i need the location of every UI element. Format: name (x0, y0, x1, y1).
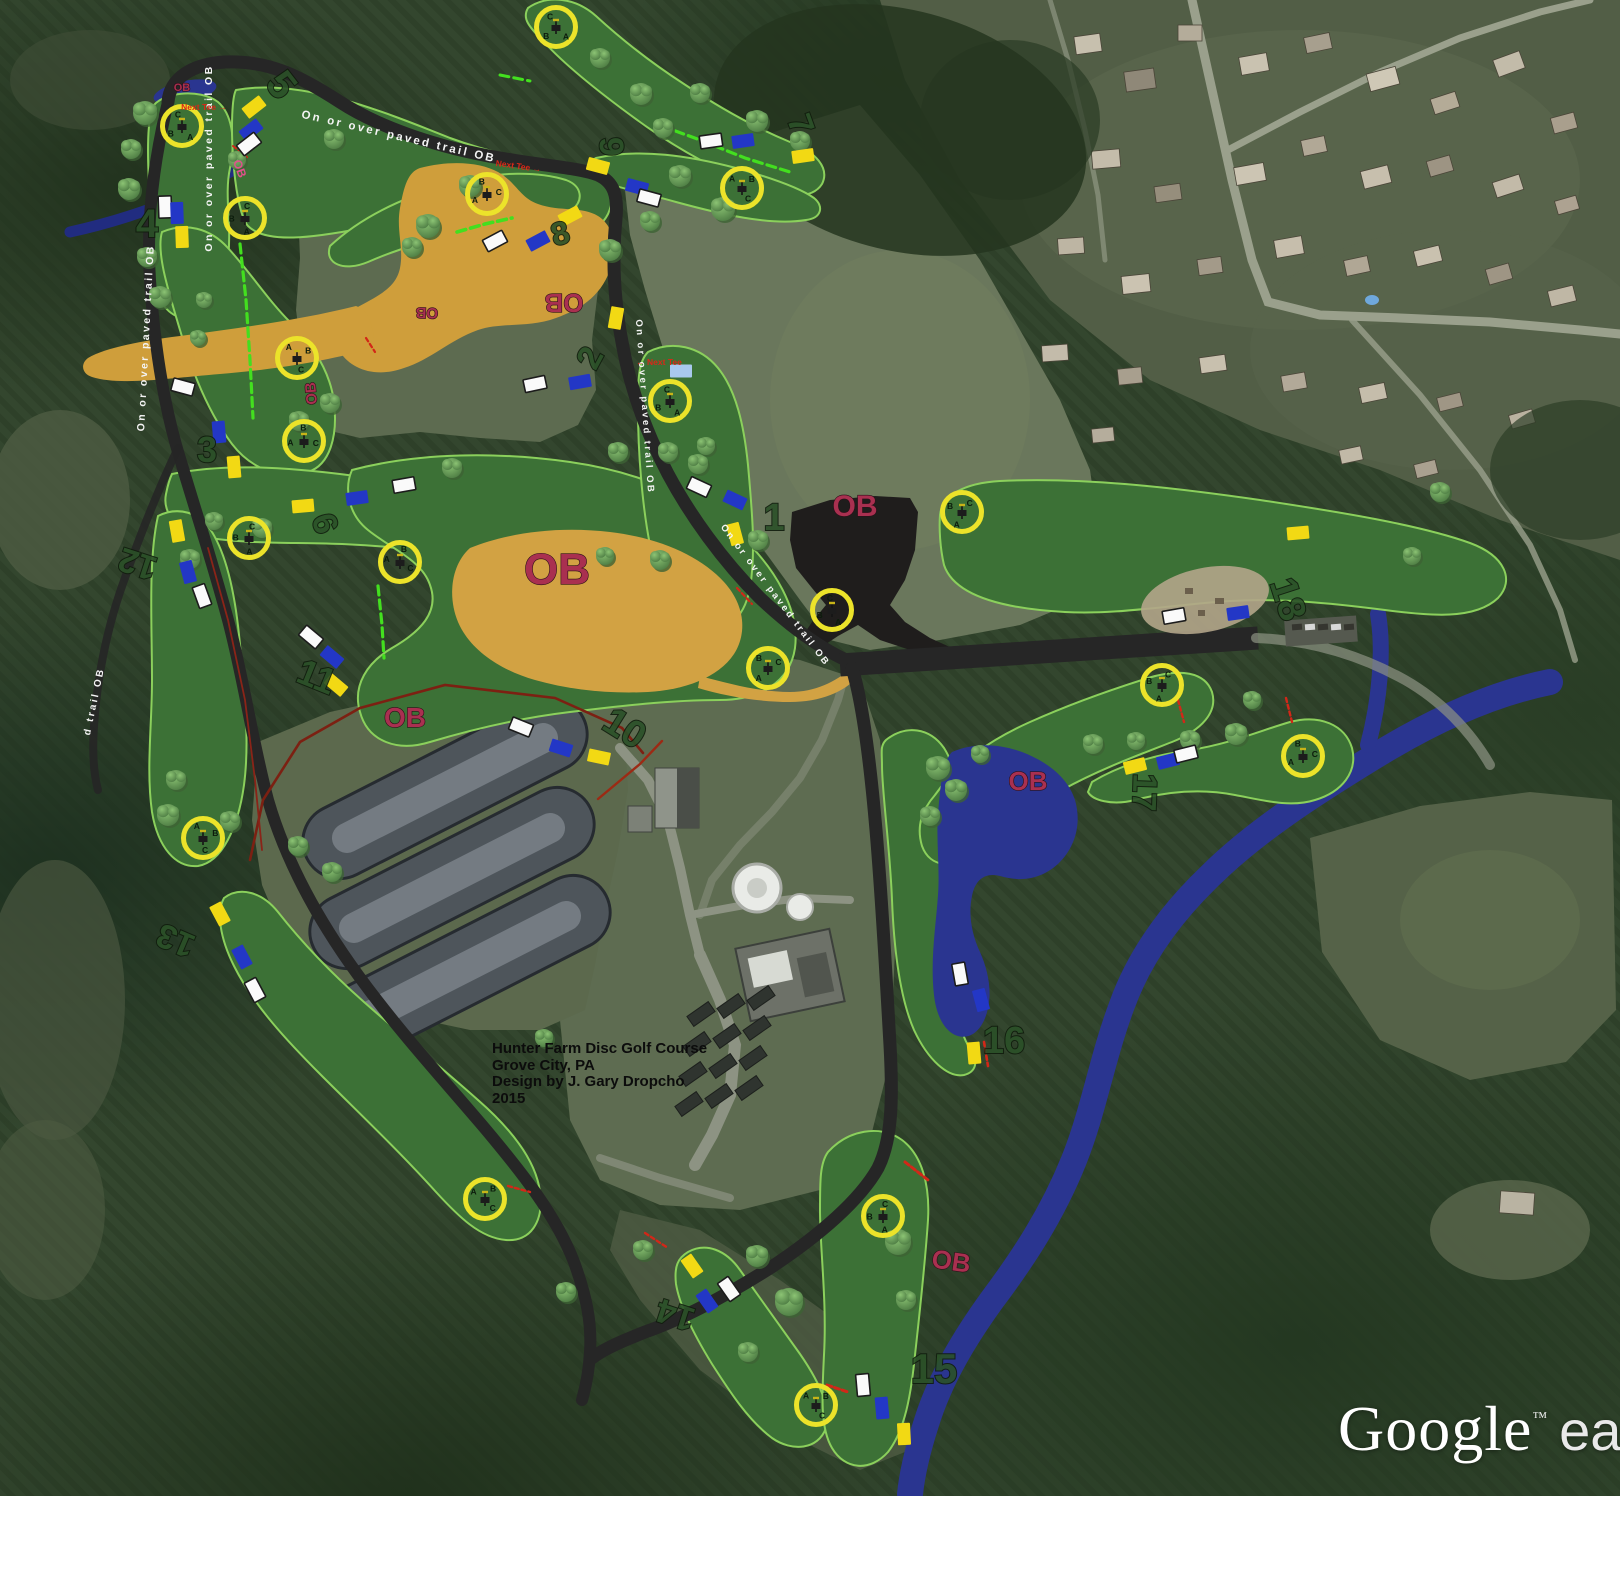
tree-canopy (166, 771, 177, 782)
basket-letter: C (882, 1199, 888, 1209)
tree-canopy (738, 1343, 749, 1354)
tee-pad-b (875, 1396, 890, 1419)
tree-canopy (1440, 484, 1450, 494)
basket-letter: C (819, 1410, 825, 1420)
tree-canopy (160, 288, 171, 299)
tree-canopy (1190, 732, 1200, 742)
basket-letter: C (664, 384, 670, 394)
basket-letter: C (496, 187, 502, 197)
house (1074, 33, 1102, 54)
tree-canopy (920, 807, 931, 818)
tree-canopy (412, 239, 422, 249)
clarifier-tank (787, 894, 813, 920)
basket-letter: C (249, 521, 255, 531)
tree-canopy (1243, 692, 1253, 702)
course-location: Grove City, PA (492, 1058, 707, 1075)
basket-letter: B (867, 1212, 873, 1222)
tree-canopy (198, 332, 206, 340)
tree-canopy (746, 111, 758, 123)
ob-label: OB (930, 1244, 973, 1279)
tree-canopy (334, 131, 344, 141)
tee-pad-w (952, 962, 969, 986)
basket-letter: A (187, 132, 193, 142)
basket-tray (1299, 754, 1308, 760)
tree-canopy (748, 531, 759, 542)
tree-canopy (1127, 733, 1137, 743)
basket-tray (481, 1197, 490, 1203)
tee-pad-y (175, 226, 189, 248)
tree-canopy (789, 1291, 803, 1305)
tree-canopy (1236, 725, 1247, 736)
tree-canopy (926, 757, 939, 770)
basket-letter: C (202, 845, 208, 855)
tree-canopy (650, 213, 660, 223)
basket-letter: A (471, 1187, 477, 1197)
tree-canopy (131, 141, 141, 151)
basket-letter: B (1295, 739, 1301, 749)
basket-tray (1158, 683, 1167, 689)
tee-pad-y (1286, 526, 1309, 541)
tree-canopy (1136, 734, 1145, 743)
house (1117, 367, 1143, 385)
tree-canopy (145, 103, 157, 115)
tree-canopy (610, 241, 621, 252)
parked-car (1344, 624, 1354, 631)
tree-icon (608, 442, 630, 464)
basket-letter: B (229, 214, 235, 224)
parked-car (1331, 624, 1341, 631)
house (1178, 25, 1202, 41)
basket-letter: A (756, 673, 762, 683)
creek-ob-line (378, 586, 384, 658)
tree-canopy (668, 444, 678, 454)
basket-letter: A (194, 821, 200, 831)
basket-tray (738, 186, 747, 192)
tee-pad-w (171, 378, 196, 396)
tree-canopy (133, 102, 146, 115)
course-name: Hunter Farm Disc Golf Course (492, 1041, 707, 1058)
tree-canopy (956, 781, 967, 792)
tree-canopy (971, 746, 981, 756)
next-tee-label: ← Next Tee (636, 357, 682, 367)
basket-letter: A (384, 554, 390, 564)
tree-canopy (176, 772, 186, 782)
tree-canopy (711, 198, 724, 211)
tree-canopy (556, 1283, 567, 1294)
basket-letter: B (655, 402, 661, 412)
house (1197, 256, 1223, 275)
basket-tray (552, 25, 561, 31)
basket-tray (300, 439, 309, 445)
tree-canopy (800, 133, 810, 143)
tee-pad-w (298, 625, 323, 649)
ob-label: OB (384, 702, 426, 733)
basket-letter: A (1288, 757, 1294, 767)
course-map-svg: CBACBACBACBACBACBACBACBACBACBACBACBACBAC… (0, 0, 1620, 1580)
tree-canopy (168, 806, 179, 817)
tree-canopy (663, 120, 673, 130)
tree-canopy (157, 805, 169, 817)
house (1091, 149, 1120, 169)
basket-letter: A (244, 226, 250, 236)
basket-letter: B (168, 128, 174, 138)
house (1091, 427, 1114, 443)
tree-canopy (330, 395, 340, 405)
basket-letter: B (212, 828, 218, 838)
tree-canopy (214, 514, 223, 523)
tree-canopy (643, 1242, 653, 1252)
tree-canopy (1412, 549, 1421, 558)
tee-pad-w (699, 133, 723, 149)
tree-canopy (698, 456, 708, 466)
basket-letter: C (827, 593, 833, 603)
basket-letter: B (1146, 676, 1152, 686)
ob-label: OB (833, 490, 878, 523)
house (1124, 68, 1156, 92)
tree-canopy (180, 550, 191, 561)
basket-tray (666, 399, 675, 405)
creek-ob-line (500, 75, 530, 81)
tee-pad-y (967, 1041, 982, 1064)
basket-letter: A (882, 1224, 888, 1234)
ob-label: OB (415, 304, 438, 322)
tree-canopy (896, 1291, 907, 1302)
basket-letter: B (756, 653, 762, 663)
basket-letter: B (823, 1391, 829, 1401)
basket-letter: C (547, 12, 553, 22)
tee-pad-y (897, 1423, 911, 1446)
tree-canopy (1430, 483, 1441, 494)
basket-tray (199, 836, 208, 842)
basket-letter: B (490, 1183, 496, 1193)
tree-canopy (641, 85, 652, 96)
hole-number-15: 15 (911, 1345, 958, 1392)
basket-letter: C (313, 438, 319, 448)
hole-number-9: 9 (592, 136, 631, 156)
bottom-white-band (0, 1496, 1620, 1580)
tree-icon (121, 139, 143, 161)
tree-canopy (402, 238, 413, 249)
watermark-earth: ea (1559, 1399, 1620, 1462)
tree-canopy (129, 180, 140, 191)
basket-tray (483, 192, 492, 198)
tree-canopy (688, 455, 699, 466)
basket-letter: C (490, 1203, 496, 1213)
house (1499, 1191, 1534, 1215)
tree-canopy (618, 444, 628, 454)
basket-letter: A (472, 195, 478, 205)
trail-ob-label: d trail OB (82, 667, 107, 737)
basket-letter: C (407, 563, 413, 573)
tree-canopy (630, 84, 642, 96)
tree-canopy (660, 552, 670, 562)
basket-letter: C (1165, 670, 1171, 680)
basket-letter: B (543, 31, 549, 41)
tree-canopy (121, 140, 132, 151)
basket-tray (879, 1214, 888, 1220)
tree-canopy (535, 1030, 545, 1040)
tree-canopy (605, 549, 614, 558)
tree-canopy (640, 212, 651, 223)
hole-number-4: 4 (136, 202, 159, 246)
tee-pad-y (227, 455, 242, 478)
tree-canopy (697, 438, 707, 448)
course-designer: Design by J. Gary Dropcho (492, 1074, 707, 1091)
basket-letter: C (244, 201, 250, 211)
watermark-tm: ™ (1532, 1410, 1547, 1426)
tree-canopy (442, 459, 453, 470)
tree-canopy (230, 813, 240, 823)
course-title-block: Hunter Farm Disc Golf Course Grove City,… (492, 1041, 707, 1107)
basket-letter: B (749, 174, 755, 184)
basket-letter: A (1156, 693, 1162, 703)
tee-pad-w (392, 477, 416, 494)
parked-car (1305, 624, 1315, 631)
tree-canopy (930, 808, 940, 818)
basket-letter: A (286, 342, 292, 352)
tree-canopy (898, 1232, 911, 1245)
next-tee-label: Next Tee → (181, 102, 227, 112)
tree-canopy (600, 50, 610, 60)
tee-pad-y (291, 499, 314, 514)
tree-canopy (118, 179, 130, 191)
trail-ob-label: On or over paved trail OB (203, 64, 215, 251)
tree-canopy (1252, 693, 1261, 702)
google-earth-watermark: Google™ea (1338, 1392, 1620, 1466)
tree-canopy (757, 1247, 768, 1258)
ob-label: OB (524, 545, 590, 594)
house (1057, 237, 1084, 255)
basket-letter: C (745, 193, 751, 203)
backyard-pool (1365, 295, 1379, 305)
tree-canopy (633, 1241, 644, 1252)
hole-number-16: 16 (983, 1020, 1025, 1062)
tree-canopy (452, 460, 462, 470)
house (1199, 354, 1227, 373)
hole-number-17: 17 (1124, 773, 1163, 812)
tree-canopy (204, 294, 212, 302)
tree-canopy (196, 293, 205, 302)
ob-boundary-line (1286, 698, 1292, 722)
tree-canopy (332, 864, 342, 874)
basket-letter: C (1312, 749, 1318, 759)
tree-canopy (945, 780, 957, 792)
tree-canopy (700, 85, 710, 95)
basket-tray (178, 124, 187, 130)
basket-letter: A (803, 1391, 809, 1401)
house (1121, 274, 1151, 295)
tree-canopy (980, 747, 989, 756)
tree-canopy (757, 112, 768, 123)
basket-letter: C (967, 498, 973, 508)
basket-letter: B (233, 533, 239, 543)
tree-canopy (906, 1292, 916, 1302)
tree-canopy (190, 551, 200, 561)
basket-letter: A (246, 547, 252, 557)
tee-pad-w (1162, 608, 1186, 625)
tree-canopy (669, 166, 681, 178)
tree-canopy (544, 1031, 553, 1040)
tree-canopy (596, 548, 606, 558)
tree-canopy (658, 443, 669, 454)
house (1041, 344, 1068, 362)
tree-canopy (324, 130, 335, 141)
basket-letter: C (775, 657, 781, 667)
basket-tray (396, 560, 405, 566)
basket-letter: B (817, 610, 823, 620)
parking-lot (1284, 616, 1358, 647)
basket-tray (828, 608, 837, 614)
course-year: 2015 (492, 1091, 707, 1108)
tree-canopy (1225, 724, 1237, 736)
tee-pad-w (856, 1373, 871, 1396)
tree-canopy (938, 758, 950, 770)
tree-canopy (590, 49, 601, 60)
basket-tray (764, 666, 773, 672)
basket-letter: A (563, 31, 569, 41)
hole-number-13: 13 (151, 915, 201, 965)
tree-canopy (1083, 735, 1094, 746)
tree-canopy (746, 1246, 758, 1258)
basket-letter: C (175, 110, 181, 120)
tree-canopy (775, 1289, 790, 1304)
ob-label: OB (1009, 766, 1048, 796)
tree-icon (556, 1282, 578, 1304)
basket-tray (241, 216, 250, 222)
tree-canopy (653, 119, 664, 130)
tree-canopy (608, 443, 619, 454)
tree-icon (118, 178, 142, 202)
tree-canopy (322, 863, 333, 874)
parked-cars (1292, 624, 1354, 631)
course-map: CBACBACBACBACBACBACBACBACBACBACBACBACBAC… (0, 0, 1620, 1580)
basket-letter: C (298, 364, 304, 374)
tree-canopy (650, 551, 661, 562)
tree-canopy (288, 837, 299, 848)
basket-tray (293, 356, 302, 362)
tree-canopy (599, 240, 611, 252)
tree-canopy (428, 216, 440, 228)
watermark-google: Google (1338, 1393, 1532, 1464)
tree-canopy (1180, 731, 1191, 742)
tee-pad-b (170, 202, 184, 224)
tree-icon (1243, 691, 1263, 711)
basket-tray (812, 1403, 821, 1409)
tree-canopy (416, 215, 429, 228)
basket-letter: A (287, 438, 293, 448)
tree-canopy (706, 439, 715, 448)
basket-letter: B (401, 544, 407, 554)
basket-tray (245, 536, 254, 542)
hole-number-3: 3 (197, 429, 217, 470)
tree-canopy (1403, 548, 1413, 558)
tree-canopy (566, 1284, 576, 1294)
parked-car (1292, 624, 1302, 631)
basket-letter: A (954, 520, 960, 530)
tree-canopy (748, 1344, 758, 1354)
basket-letter: B (947, 501, 953, 511)
basket-letter: A (674, 408, 680, 418)
parked-car (1318, 624, 1328, 631)
ob-label: OB (174, 82, 191, 94)
tree-canopy (190, 331, 199, 340)
basket-letter: B (300, 423, 306, 433)
tree-canopy (298, 838, 308, 848)
creek-east-branch (1368, 614, 1381, 745)
tree-canopy (205, 513, 215, 523)
tee-pad-w (158, 196, 172, 218)
tree-canopy (680, 167, 691, 178)
house (1154, 183, 1182, 202)
tree-canopy (220, 812, 231, 823)
basket-letter: A (835, 617, 841, 627)
ob-label: OB (545, 288, 584, 318)
basket-tray (958, 510, 967, 516)
ob-label: OB (302, 381, 321, 405)
tree-canopy (1093, 736, 1103, 746)
basket-letter: B (305, 346, 311, 356)
tree-canopy (320, 394, 331, 405)
tree-canopy (690, 84, 701, 95)
hole-number-1: 1 (763, 497, 784, 539)
basket-letter: A (729, 174, 735, 184)
basket-letter: B (479, 177, 485, 187)
